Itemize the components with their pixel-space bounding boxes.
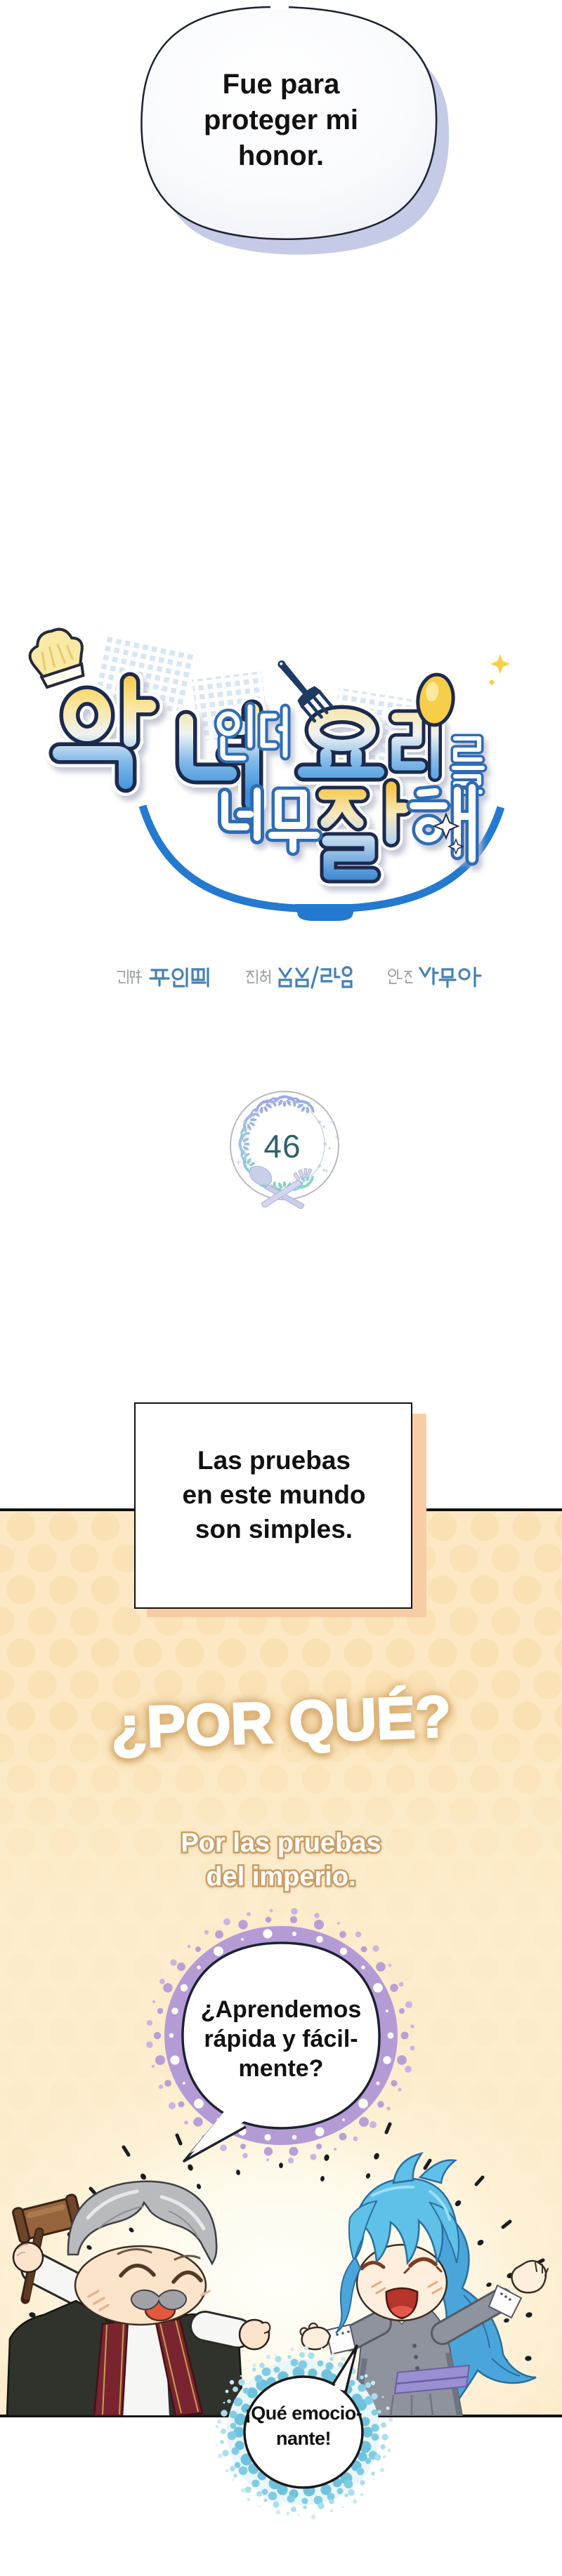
svg-text:46: 46 — [263, 1128, 301, 1164]
